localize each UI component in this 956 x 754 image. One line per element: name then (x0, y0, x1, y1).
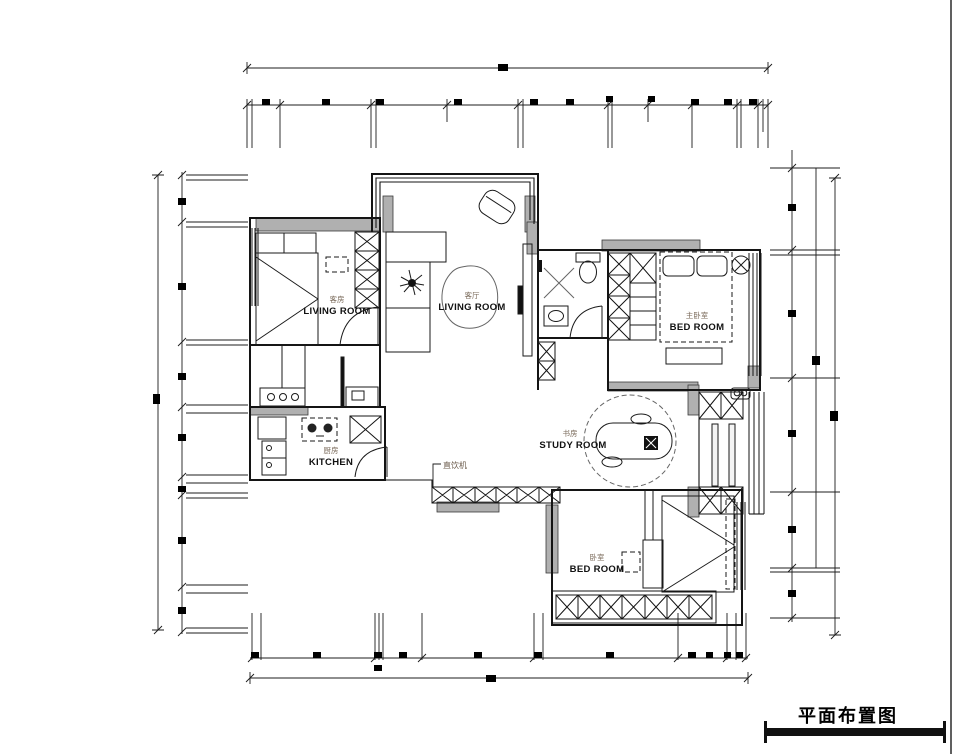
pillow (663, 256, 694, 276)
bedroom-wardrobe-strip (552, 591, 716, 623)
floor-plan-drawing: 客房 LIVING ROOM 客厅 LIVING ROOM 主卧室 BED RO… (0, 0, 956, 754)
tv-cabinet (518, 244, 532, 356)
bedroom-stool (622, 552, 640, 572)
wall-poche (250, 196, 760, 573)
bedroom-outline (552, 490, 742, 625)
dimension-label-blobs-bottom (251, 652, 743, 671)
master-bedroom-outline (608, 250, 760, 390)
hall-cabinet (538, 342, 555, 380)
guest-room-window (252, 228, 258, 306)
guest-stool (326, 257, 348, 272)
balcony-armchair (476, 187, 519, 227)
room-labels: 客房 LIVING ROOM 客厅 LIVING ROOM 主卧室 BED RO… (303, 290, 724, 575)
toilet-bowl (580, 261, 597, 283)
master-bedroom-label-cn: 主卧室 (686, 310, 709, 320)
dimension-label-blob (498, 64, 508, 71)
guest-bed (256, 233, 348, 345)
bedroom-label-en: BED ROOM (570, 564, 625, 575)
title-block: 平面布置图 (764, 705, 946, 743)
kitchen-door (355, 447, 387, 477)
balcony-bay-inner (376, 178, 534, 228)
living-room-label-cn: 客厅 (465, 290, 480, 300)
dimension-lines-left (152, 171, 248, 636)
title-underline-bar (766, 728, 946, 736)
title-bar-tick (764, 721, 767, 743)
title-bar-tick (943, 721, 946, 743)
hall-threshold (385, 480, 432, 487)
kitchen-sink (262, 458, 286, 475)
windows (252, 228, 764, 590)
master-bedroom-label-en: BED ROOM (670, 322, 725, 333)
bed-bench (666, 348, 722, 364)
ceiling-fan-symbol (732, 256, 750, 274)
dimension-label-blob (153, 394, 160, 404)
balcony-bay-outer (372, 174, 538, 250)
guest-room-label-en: LIVING ROOM (303, 306, 370, 317)
study-room-label-en: STUDY ROOM (539, 440, 606, 451)
living-sofa (386, 232, 446, 352)
kitchen-cabinet (350, 416, 381, 443)
plant (400, 270, 424, 295)
water-dispenser-callout: 直饮机 (433, 460, 467, 487)
guest-room-outline (250, 218, 380, 345)
living-room-label-en: LIVING ROOM (438, 302, 505, 313)
study-room-label-cn: 书房 (563, 428, 578, 438)
bedroom-desk (643, 540, 663, 588)
dimension-lines-bottom (246, 613, 752, 684)
bedroom-window (737, 502, 745, 590)
dimension-label-blob (830, 411, 838, 421)
laundry-units (260, 345, 378, 407)
bedroom-label-cn: 卧室 (590, 552, 605, 562)
study-right-cabinet-bottom (699, 487, 743, 514)
guest-room-label-cn: 客房 (330, 294, 345, 304)
pillow (697, 256, 727, 276)
laundry-hall-outline (250, 345, 380, 407)
dimension-label-blob (486, 675, 496, 682)
dimension-label-blob (812, 356, 820, 365)
kitchen-counter (258, 417, 286, 439)
kitchen-fixtures (258, 417, 387, 477)
master-wardrobe (608, 253, 656, 340)
partition-bar (341, 357, 344, 407)
burner (324, 424, 333, 433)
dimension-label-blobs-top (262, 96, 757, 105)
burner (308, 424, 317, 433)
shower-area (544, 268, 574, 298)
water-dispenser-label: 直饮机 (443, 460, 467, 470)
study-low-cabinet (432, 487, 560, 503)
dimension-lines-right (770, 150, 841, 639)
bathroom-door (570, 306, 602, 338)
study-radiator (712, 424, 735, 486)
bathroom-jamb (538, 260, 542, 272)
kitchen-label-en: KITCHEN (309, 457, 353, 468)
drawing-title: 平面布置图 (798, 705, 898, 727)
dimension-lines-top (243, 62, 772, 148)
kitchen-sink (262, 441, 286, 458)
bathroom-fixtures (538, 253, 602, 338)
study-table (596, 423, 672, 459)
guest-wardrobe (355, 232, 379, 308)
study-room-window (749, 392, 764, 514)
bathroom-sink (544, 306, 568, 326)
hall-desk (346, 387, 378, 407)
bedroom-furniture (622, 490, 735, 592)
master-bed (660, 252, 732, 364)
kitchen-label-cn: 厨房 (324, 445, 339, 455)
cad-floor-plan-canvas: 客房 LIVING ROOM 客厅 LIVING ROOM 主卧室 BED RO… (0, 0, 956, 754)
